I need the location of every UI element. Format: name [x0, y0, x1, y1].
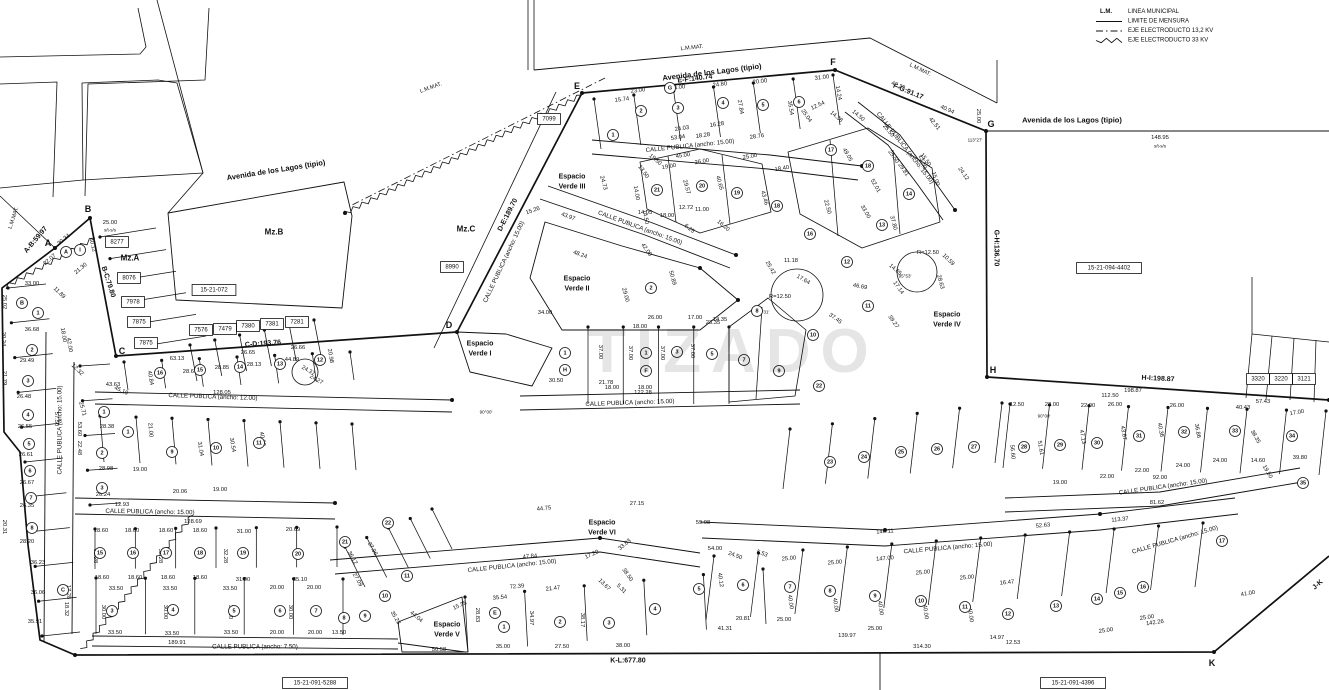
parcel-number: 7 [788, 584, 791, 590]
measurement-label: 19.00 [661, 163, 676, 171]
municipal-street [0, 82, 57, 197]
measurement-label: 19.00 [1053, 480, 1068, 486]
measurement-label: 113.37 [1111, 516, 1129, 523]
parcel-number: 16 [1140, 584, 1146, 590]
measurement-label: 26.61 [19, 452, 34, 458]
parcel-number: 1 [563, 350, 566, 356]
espacio-verde-label: Verde IV [933, 322, 961, 329]
parcel-number: 10 [810, 332, 816, 338]
measurement-label: 72.39 [510, 583, 525, 590]
measurement-label: 27.09 [351, 572, 363, 588]
measurement-label: 22.00 [1100, 474, 1115, 480]
measurement-label: 31.04 [196, 441, 205, 457]
measurement-label: 21.30 [74, 262, 89, 276]
cadastral-id: 3121 [1297, 377, 1311, 383]
measurement-label: s/t-s/s [1154, 144, 1167, 149]
measurement-label: 25.00 [868, 626, 883, 632]
measurement-label: 25.04 [799, 108, 813, 124]
measurement-label: 38.35 [1249, 429, 1261, 445]
measurement-label: 26.00 [1170, 403, 1185, 409]
survey-corner-dot [98, 235, 101, 238]
measurement-label: 17.20 [584, 549, 600, 561]
measurement-label: 11.18 [784, 258, 798, 264]
parcel-number: 21 [342, 539, 348, 545]
espacio-verde-label: Espacio [589, 520, 616, 527]
parcels-row-16-12 [350, 352, 354, 380]
cadastral-id: 8076 [122, 276, 136, 282]
measurement-label: 45.00 [675, 152, 690, 160]
measurement-label: R=12.50 [917, 250, 939, 256]
espacio-verde-label: Verde I [469, 351, 492, 358]
survey-corner-dot [40, 634, 43, 637]
measurement-label: 41.31 [718, 626, 733, 632]
measurement-label: 49.05 [841, 147, 853, 163]
survey-corner-dot [523, 590, 526, 593]
parcels-right-row [1319, 411, 1326, 475]
measurement-label: 40.36 [1156, 422, 1164, 437]
parcel-number: 28 [1021, 444, 1027, 450]
parcels-block-a [316, 423, 320, 469]
boundary-vertex-dot [1212, 650, 1216, 654]
measurement-label: 37.00 [597, 345, 603, 360]
parcels-bottom-row [706, 556, 714, 620]
parcel-number: 6 [28, 468, 31, 474]
measurement-label: R=12.50 [769, 294, 791, 300]
measurement-label: 23.00 [630, 87, 645, 95]
vertex-letter: C [119, 346, 126, 356]
measurement-label: 21.00 [146, 423, 153, 438]
parcels-row-23-27 [783, 429, 790, 489]
survey-corner-dot [350, 422, 353, 425]
parcel-number: E [493, 610, 497, 616]
cadastral-id: 3220 [1274, 377, 1288, 383]
espacio-verde-label: Espacio [564, 276, 591, 283]
measurement-label: 18.00 [638, 385, 653, 391]
municipal-block [82, 80, 203, 180]
measurement-label: 18.60 [95, 575, 110, 581]
measurement-label: 26.65 [241, 350, 256, 356]
parcel-line [1314, 340, 1316, 402]
measurement-label: 22.00 [1135, 468, 1150, 474]
cadastral-id: 7576 [194, 328, 208, 334]
survey-corner-dot [409, 517, 412, 520]
measurement-label: 32.28 [222, 549, 228, 564]
parcel-number: 22 [816, 383, 822, 389]
survey-corner-dot [6, 286, 9, 289]
measurement-label: 27.84 [736, 99, 745, 115]
measurement-label: 34.00 [538, 310, 553, 316]
parcels-row-16-12 [124, 362, 128, 390]
parcel-number: 18 [865, 163, 871, 169]
measurement-label: 53.04 [670, 134, 686, 142]
measurement-label: 18.28 [695, 132, 710, 140]
measurement-label: 31.00 [237, 529, 252, 535]
measurement-label: 30.54 [228, 437, 237, 453]
measurement-label: 29.00 [620, 287, 630, 303]
measurement-label: 35.54 [786, 100, 795, 116]
measurement-label: 51.61 [1036, 440, 1044, 455]
measurement-label: 90°00' [1038, 414, 1051, 419]
municipal-street [0, 8, 146, 57]
parcels-bottom-row [1151, 526, 1159, 590]
parcels-block-a [244, 421, 248, 467]
parcels-left-col2 [80, 364, 110, 366]
measurement-label: 28.76 [749, 133, 764, 141]
measurement-label: 22.50 [822, 199, 832, 215]
survey-corner-dot [792, 77, 795, 80]
espacio-verde-label: Verde II [565, 286, 590, 293]
parcel-number: 10 [213, 445, 219, 451]
measurement-label: 36.23 [31, 560, 46, 566]
parcel-number: 1 [102, 409, 105, 415]
parcel-number: 29 [1057, 442, 1063, 448]
measurement-label: 13.50 [332, 630, 347, 636]
parcel-number: 25 [898, 449, 904, 455]
survey-corner-dot [1206, 407, 1209, 410]
boundary-vertex-dot [88, 216, 92, 220]
measurement-label: 12.54 [810, 100, 826, 112]
measurement-label: 29.49 [20, 358, 35, 364]
measurement-label: 20.00 [270, 585, 285, 591]
parcels-row-23-27 [825, 424, 832, 484]
measurement-label: 12.50 [1010, 402, 1025, 408]
measurement-label: 189.91 [168, 640, 186, 646]
measurement-label: 37.00 [689, 344, 695, 359]
measurement-label: 26.55 [18, 424, 33, 430]
boundary-vertex-dot [734, 253, 738, 257]
street-edge [95, 404, 452, 412]
boundary-vertex-dot [343, 211, 347, 215]
parcels-row-23-27 [868, 419, 875, 479]
survey-corner-dot [86, 469, 89, 472]
boundary-vertex-dot [833, 68, 837, 72]
measurement-label: 20.31 [1, 520, 7, 535]
measurement-label: 25.00 [1098, 627, 1113, 635]
parcels-block-a [208, 419, 212, 465]
measurement-label: 33.00 [859, 204, 871, 220]
survey-corner-dot [238, 333, 241, 336]
parcel-number: A [64, 249, 68, 255]
survey-corner-dot [592, 97, 595, 100]
survey-corner-dot [144, 577, 147, 580]
parcel-number: 11 [865, 303, 871, 309]
measurement-label: 14.24 [834, 85, 843, 101]
parcel-number: 3 [607, 620, 610, 626]
parcel-number: 31 [1136, 433, 1142, 439]
survey-corner-dot [206, 418, 209, 421]
measurement-label: 33.50 [109, 586, 124, 592]
parcel-number: 16 [807, 231, 813, 237]
measurement-label: 33.50 [108, 630, 123, 636]
measurement-label: 36.06 [31, 590, 46, 596]
measurement-label: 30.00 [287, 605, 293, 620]
parcels-right-row [1240, 409, 1247, 473]
measurement-label: 27.50 [555, 644, 570, 650]
parcels-e-row [644, 580, 647, 635]
boundary-segment-label: G-H:136.70 [993, 230, 1000, 267]
parcel-number: 27 [971, 444, 977, 450]
measurement-label: 17.00 [688, 315, 703, 321]
measurement-label: 25.00 [828, 559, 843, 566]
measurement-label: 38.17 [579, 613, 585, 628]
measurement-label: 40.12 [87, 237, 97, 253]
street-edge [72, 362, 74, 634]
measurement-label: 20.81 [736, 616, 751, 622]
measurement-label: 26.48 [17, 394, 32, 400]
parcel-number: 14 [906, 191, 913, 197]
measurement-label: 31.00 [814, 74, 829, 82]
parcel-number: 5 [232, 608, 235, 614]
street-label: CALLE PUBLICA (ancho: 15.00) [645, 138, 734, 154]
parcel-number: 15 [1117, 590, 1123, 596]
measurement-label: 22.48 [76, 441, 82, 456]
survey-corner-dot [1024, 533, 1027, 536]
measurement-label: 40.00 [831, 597, 839, 612]
parcels-7576-row [264, 330, 271, 366]
cadastral-id: 7875 [139, 341, 153, 347]
survey-corner-dot [727, 325, 730, 328]
vertex-letter: G [987, 119, 994, 129]
parcel-number: 13 [1053, 603, 1059, 609]
cadastral-id: 7380 [241, 324, 255, 330]
measurement-label: 20.00 [307, 585, 322, 591]
espacio-verde-label: Espacio [467, 341, 494, 348]
espacio-verde-label: Espacio [934, 312, 961, 319]
legend-label: EJE ELECTRODUCTO 33 KV [1128, 38, 1208, 44]
measurement-label: 57.43 [1256, 399, 1271, 405]
cadastral-id: 7281 [290, 320, 304, 326]
parcel-number: 33 [1232, 428, 1238, 434]
parcel-number: 6 [741, 582, 744, 588]
survey-corner-dot [801, 548, 804, 551]
measurement-label: 46.69 [852, 283, 867, 291]
measurement-label: 39.27 [886, 314, 899, 329]
boundary-vertex-dot [114, 354, 118, 358]
boundary-vertex-dot [450, 398, 454, 402]
measurement-label: 28.98 [99, 466, 114, 472]
survey-corner-dot [1285, 409, 1288, 412]
cadastral-id: 7381 [265, 322, 279, 328]
parcels-bottom-row [1062, 532, 1070, 596]
parcel-number: 1 [126, 429, 129, 435]
parcels-block-a [352, 424, 356, 470]
measurement-label: 18.60 [193, 575, 208, 581]
measurement-label: 25.02 [1, 295, 7, 310]
municipal-street [168, 173, 203, 213]
municipal-line-label: L.M.MAT. [908, 62, 932, 78]
parcel-number: 1 [644, 350, 647, 356]
parcel-number: 30 [1094, 440, 1100, 446]
measurement-label: 28.83 [474, 608, 480, 623]
measurement-label: 15.74 [614, 96, 630, 104]
measurement-label: 30.00 [162, 605, 168, 620]
measurement-label: 24.00 [1176, 463, 1191, 469]
measurement-label: 39.80 [1293, 455, 1308, 461]
measurement-label: 12.53 [1006, 640, 1021, 646]
parcel-number: 5 [697, 586, 700, 592]
parcel-number: 2 [558, 619, 561, 625]
parcel-number: 7 [314, 608, 317, 614]
measurement-label: 17.14 [891, 280, 905, 296]
measurement-label: 11.89 [52, 286, 66, 300]
legend-label: EJE ELECTRODUCTO 13,2 KV [1128, 28, 1213, 34]
survey-corner-dot [958, 407, 961, 410]
measurement-label: 33.50 [224, 630, 239, 636]
parcels-bottom-row [884, 544, 892, 608]
boundary-segment-label: J-K [1311, 579, 1324, 592]
measurement-label: 12.32 [70, 363, 85, 378]
parcels-left-col2 [85, 434, 115, 436]
parcel-number: 11 [256, 440, 262, 446]
vertex-letter: E [574, 81, 580, 91]
espacio-verde-label: Verde V [434, 632, 460, 639]
vertex-letter: B [85, 204, 92, 214]
street-edge [95, 392, 452, 400]
street-label: CALLE PUBLICA (ancho: 15.00) [467, 558, 556, 574]
espacio-verde-label: Verde VI [588, 530, 616, 537]
parcel-number: 8 [30, 525, 33, 531]
measurement-label: 14.00 [632, 185, 640, 200]
measurement-label: 26.66 [291, 345, 306, 351]
measurement-label: 21.79 [1, 371, 7, 386]
parcels-diag-8-11 [432, 509, 452, 549]
parcel-line [1252, 334, 1329, 342]
parcels-top-row [674, 91, 681, 141]
measurement-label: 42.00 [639, 242, 652, 257]
parcel-number: 2 [639, 108, 642, 114]
measurement-label: 20.00 [270, 630, 285, 636]
measurement-label: 14.38 [829, 110, 844, 124]
parcel-line [1246, 334, 1252, 398]
measurement-label: 26.00 [694, 158, 709, 166]
manzana-label: Mz.B [265, 228, 284, 237]
cadastral-id: 7099 [542, 117, 556, 123]
vertex-letter: F [830, 57, 836, 67]
measurement-label: 14.50 [641, 209, 649, 224]
boundary-vertex-dot [698, 266, 702, 270]
measurement-label: 13.50 [636, 164, 649, 179]
survey-corner-dot [13, 356, 16, 359]
survey-corner-dot [170, 417, 173, 420]
boundary-vertex-dot [53, 246, 57, 250]
parcels-right-row [1280, 410, 1287, 474]
measurement-label: 53.60 [76, 422, 82, 437]
parcels-bottom-row [1106, 529, 1114, 593]
measurement-label: 18.40 [774, 165, 789, 173]
boundary-segment-label: C-D:193.76 [245, 339, 282, 349]
parcels-row-23-27 [910, 413, 917, 473]
cadastral-id: 8277 [110, 240, 124, 246]
survey-corner-dot [348, 350, 351, 353]
street-label: Avenida de los Lagos (tipio) [226, 158, 326, 183]
municipal-line-label: L.M.MAT. [8, 206, 21, 230]
measurement-label: 18.00 [633, 324, 648, 330]
survey-corner-dot [122, 360, 125, 363]
survey-corner-dot [657, 325, 660, 328]
survey-corner-dot [463, 595, 466, 598]
measurement-label: 139.97 [838, 633, 856, 639]
parcel-number: 32 [1181, 429, 1187, 435]
measurement-label: 19.00 [133, 467, 148, 473]
cadastral-map: 23.0024.0024.8020.0031.0015.7424.0353.04… [0, 0, 1329, 690]
survey-corner-dot [430, 507, 433, 510]
parcel-number: 3 [676, 105, 679, 111]
parcel-number: 8 [342, 615, 345, 621]
survey-corner-dot [1324, 409, 1327, 412]
boundary-vertex-dot [598, 536, 602, 540]
parcel-number: 1 [502, 624, 505, 630]
measurement-label: 18.60 [125, 528, 140, 534]
survey-corner-dot [83, 434, 86, 437]
parcel-number: 3 [110, 608, 113, 614]
parcels-top-row [634, 95, 641, 145]
measurement-label: 25.00 [960, 574, 975, 581]
survey-corner-dot [1068, 530, 1071, 533]
measurement-label: 26.35 [20, 503, 35, 509]
measurement-label: 35.23 [389, 610, 401, 626]
measurement-label: 90°00' [480, 410, 493, 415]
survey-corner-dot [188, 343, 191, 346]
survey-corner-dot [314, 421, 317, 424]
survey-corner-dot [890, 542, 893, 545]
parcels-row-23-27 [953, 408, 960, 468]
parcels-block-a [280, 422, 284, 468]
measurement-label: 25.71 [77, 401, 87, 417]
measurement-label: 23.00 [1045, 402, 1060, 408]
measurement-label: 42.51 [927, 117, 941, 132]
parcels-left-col [42, 632, 80, 636]
measurement-label: 31.00 [236, 577, 251, 583]
survey-corner-dot [213, 338, 216, 341]
measurement-label: 30.50 [549, 378, 564, 384]
measurement-label: 147.00 [876, 555, 894, 563]
boundary-vertex-dot [73, 653, 77, 657]
manzana-label: Mz.C [457, 225, 476, 234]
measurement-label: 16.47 [1000, 579, 1015, 586]
measurement-label: 28.20 [20, 539, 35, 545]
measurement-label: 18.60 [94, 528, 109, 534]
parcel-number: 22 [385, 520, 391, 526]
measurement-label: 40.43 [1236, 405, 1251, 411]
measurement-label: 24.12 [956, 166, 969, 181]
parcels-row-23-27 [995, 403, 1002, 463]
parcel-number: 17 [163, 550, 169, 556]
survey-corner-dot [788, 427, 791, 430]
legend-label: LINEA MUNICIPAL [1128, 9, 1180, 15]
street-label: CALLE PUBLICA (ancho: 12.00) [168, 392, 257, 402]
measurement-label: 25.00 [916, 569, 931, 576]
parcels-right-row [1003, 404, 1010, 468]
parcel-number: 14 [1094, 596, 1101, 602]
survey-corner-dot [198, 357, 201, 360]
parcels-mza [150, 336, 206, 345]
parcel-number: 19 [734, 190, 740, 196]
survey-corner-dot [642, 579, 645, 582]
parcel-number: 23 [827, 459, 833, 465]
measurement-label: 24.27 [308, 374, 324, 386]
parcel-number: 9 [873, 593, 876, 599]
parcels-right-row [1161, 408, 1168, 472]
municipal-line-label: L.M.MAT. [680, 44, 704, 52]
parcel-line [756, 307, 762, 399]
parcel-number: 12 [844, 259, 850, 265]
measurement-label: 35.54 [492, 594, 508, 602]
measurement-label: 40.84 [146, 370, 155, 386]
measurement-label: 81.62 [1150, 500, 1165, 506]
measurement-label: 33.83 [618, 538, 633, 552]
measurement-label: 38.50 [620, 567, 633, 582]
parcel-number: 1 [611, 132, 614, 138]
